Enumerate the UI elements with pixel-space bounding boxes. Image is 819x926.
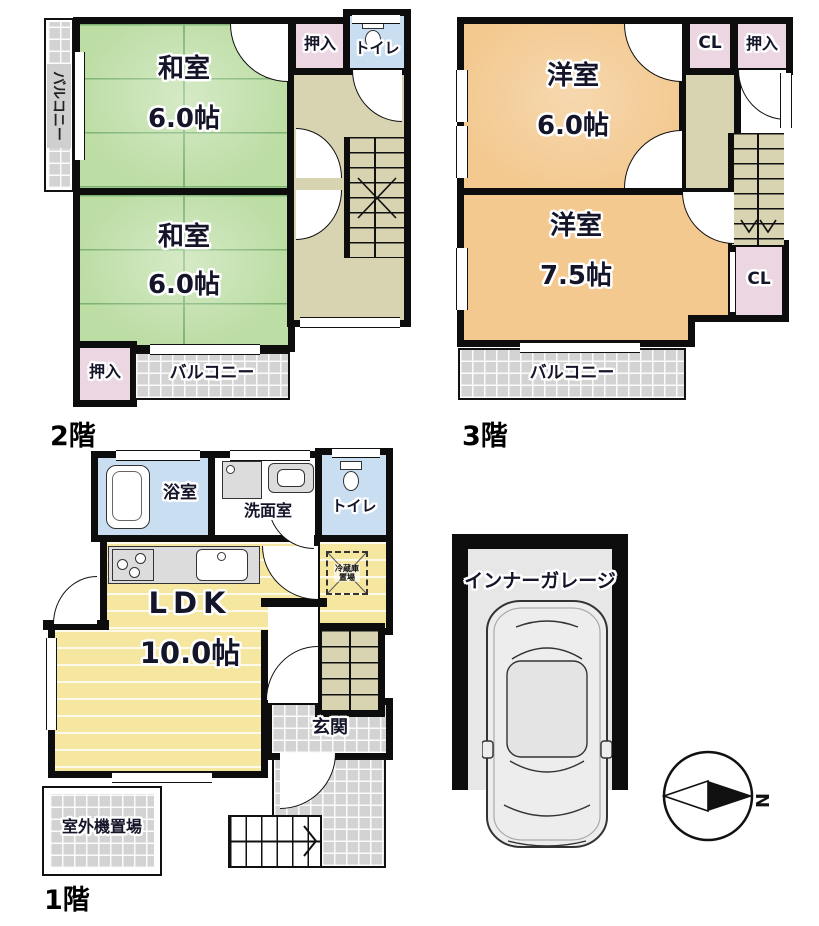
f1-toilet-label: トイレ — [322, 498, 386, 515]
f3-yoshitsu-top-name: 洋室 — [513, 62, 633, 91]
f1-fridge-space: 冷蔵庫置場 — [326, 551, 368, 595]
garage-wall-top — [452, 534, 628, 549]
f3-yoshitsu-top-size: 6.0帖 — [503, 112, 643, 141]
f2-side-balcony-label-plate: バルコニー — [47, 64, 71, 148]
f1-sink-faucet — [217, 552, 226, 561]
f3-cl-right-label: CL — [736, 270, 782, 289]
f1-basin-bowl — [277, 469, 305, 487]
f2-side-balcony-grid-bottom — [48, 146, 70, 188]
f3-stairs-down-arrows-icon — [733, 214, 783, 244]
f1-stove-icon — [112, 549, 154, 581]
f1-bathtub-inner — [112, 471, 142, 521]
f3-window-left-mid — [456, 126, 468, 178]
f2-oshiire-bottom-label: 押入 — [80, 363, 130, 381]
f1-ldk-name: LDK — [100, 588, 280, 620]
f1-outdoor-unit-label: 室外機置場 — [46, 818, 158, 836]
f1-stove-burner1 — [135, 553, 146, 564]
f1-washroom-window — [230, 450, 310, 461]
f3-window-left-lower — [456, 248, 468, 310]
f3-oshiire-label: 押入 — [738, 35, 786, 53]
f3-window-left-upper — [456, 70, 468, 122]
f1-toilet-bowl-icon — [343, 471, 359, 491]
f1-bathtub-icon — [106, 465, 150, 529]
f1-ldk-size: 10.0帖 — [100, 638, 280, 670]
car-icon — [482, 593, 612, 855]
floor-plan: バルコニー 和室 6.0帖 和室 6.0帖 押入 トイレ 押入 バルコニー 2階 — [0, 0, 819, 926]
f1-stove-burner3 — [129, 567, 140, 578]
f1-floor-label: 1階 — [44, 878, 90, 917]
f1-sink-icon — [196, 549, 248, 581]
f2-washitsu-bottom-size: 6.0帖 — [114, 271, 254, 300]
f3-floor-label: 3階 — [462, 414, 508, 453]
f2-side-balcony: バルコニー — [44, 18, 74, 192]
compass: N — [656, 746, 786, 850]
f2-toilet-label: トイレ — [348, 40, 406, 57]
f2-balcony-label: バルコニー — [134, 364, 290, 383]
f3-oshiire-door — [738, 70, 786, 120]
f1-outdoor-stairs-arrow-icon — [302, 824, 320, 858]
f3-window-right — [780, 73, 792, 128]
f2-washitsu-top-name: 和室 — [124, 55, 244, 84]
compass-north-label: N — [751, 793, 772, 808]
f1-stove-burner2 — [117, 559, 128, 570]
f2-balcony-side-opening — [74, 52, 85, 160]
f1-ldk-window-left — [46, 638, 57, 730]
f1-stairs — [322, 630, 378, 710]
f2-washitsu-top-size: 6.0帖 — [114, 105, 254, 134]
f3-hall — [686, 72, 734, 190]
f3-yoshitsu-bottom-size: 7.5帖 — [506, 262, 646, 291]
f2-balcony-opening — [150, 344, 260, 355]
f2-oshiire-top-label: 押入 — [296, 35, 344, 53]
f3-balcony-opening — [520, 342, 640, 353]
f1-outdoor-unit-space: 室外機置場 — [42, 786, 162, 876]
f1-fridge-label: 冷蔵庫置場 — [334, 564, 360, 582]
f2-toilet-window — [352, 14, 400, 24]
f1-washer-icon — [222, 461, 262, 499]
f2-washitsu-bottom-name: 和室 — [124, 223, 244, 252]
f2-stairs-cross-icon — [350, 170, 404, 226]
f3-cl-right-sliding-door — [729, 252, 736, 312]
f1-bath-label: 浴室 — [148, 484, 212, 503]
f3-yoshitsu-bottom-name: 洋室 — [516, 212, 636, 241]
f2-side-balcony-grid-top — [48, 22, 70, 64]
f1-washer-dial — [226, 465, 235, 474]
f2-floor-label: 2階 — [50, 414, 96, 453]
f1-washroom-label: 洗面室 — [216, 502, 320, 520]
f1-ldk-window-bottom — [112, 772, 212, 783]
garage-label: インナーガレージ — [456, 571, 624, 592]
f3-balcony-label: バルコニー — [458, 364, 686, 383]
f2-side-balcony-label: バルコニー — [49, 71, 69, 141]
f1-genkan-label: 玄関 — [298, 718, 362, 738]
f2-hall-window — [300, 317, 400, 328]
f1-toilet-window — [332, 448, 380, 458]
f3-cl-top-label: CL — [690, 34, 730, 53]
f1-ldk-outside-door — [53, 576, 97, 624]
f1-bath-window — [116, 450, 200, 461]
f1-toilet-tank-icon — [340, 461, 362, 470]
f1-basin-icon — [268, 463, 314, 493]
